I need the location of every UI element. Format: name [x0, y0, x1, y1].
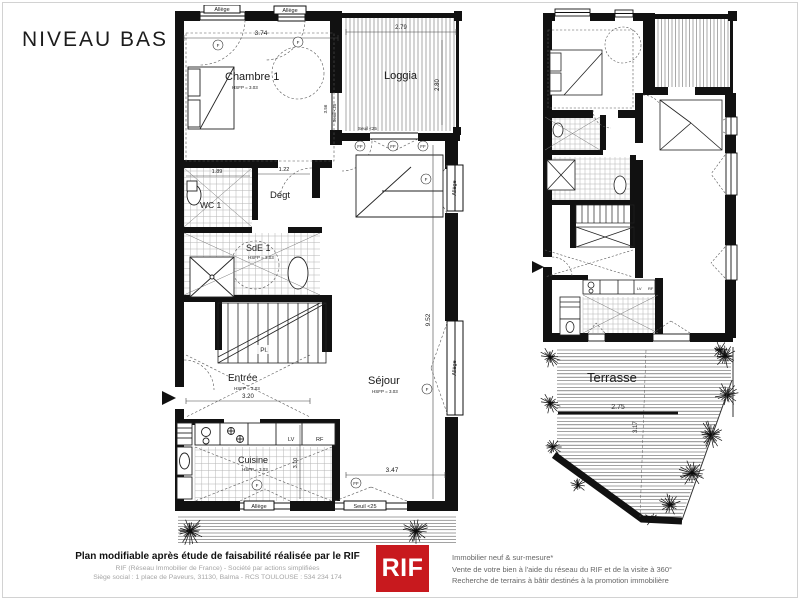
washing-machine	[560, 297, 580, 319]
toilet	[553, 123, 563, 137]
dim-wc-width: 1.89	[212, 169, 223, 175]
kitchen-counter	[195, 423, 335, 445]
footer-services: Immobilier neuf & sur-mesure* Vente de v…	[452, 552, 752, 587]
entrance-arrow	[162, 391, 176, 405]
room-label-loggia: Loggia	[384, 70, 418, 82]
room-label-sejour: Séjour	[368, 375, 400, 387]
dim-terrasse-width: 2.75	[611, 404, 625, 411]
floor-plan-left: Allège Allège Allège Seuil <25 Allège Al…	[160, 5, 470, 550]
room-label-placard: Pl.	[260, 347, 268, 354]
mark-f: F	[217, 43, 220, 48]
mark-ff: FF	[357, 144, 363, 149]
hsfp-entree: HSFP = 3.03	[234, 386, 260, 391]
footer-legal: Plan modifiable après étude de faisabili…	[60, 551, 375, 582]
hsfp-sejour: HSFP = 3.03	[372, 389, 398, 394]
dim-loggia-width: 2.79	[395, 25, 407, 31]
footer-company-line: RIF (Réseau Immobilier de France) - Soci…	[60, 564, 375, 573]
entrance-arrow	[532, 261, 544, 273]
dim-sejour-width: 3.47	[386, 467, 399, 474]
rif-logo: RIF	[376, 545, 429, 592]
washing-machine	[177, 423, 192, 445]
dim-terrasse-depth: 3.17	[633, 421, 639, 433]
mark-ff: FF	[353, 481, 359, 486]
room-label-entree: Entrée	[228, 373, 258, 384]
floor-plan-sheet: NIVEAU BAS	[0, 0, 800, 600]
sofa	[356, 155, 443, 217]
room-label-terrasse: Terrasse	[587, 370, 637, 385]
hsfp-sde: HSFP = 3.03	[248, 255, 274, 260]
dim-sejour-depth: 9.52	[425, 313, 432, 326]
footer-headline: Plan modifiable après étude de faisabili…	[60, 551, 375, 562]
allege-label: Allège	[452, 360, 458, 375]
mark-f: F	[426, 387, 429, 392]
appliance-lv: LV	[637, 286, 642, 291]
mark-ff: FF	[420, 144, 426, 149]
dim-chambre-door: 3.56	[323, 104, 328, 113]
hsfp-cuisine: HSFP = 3.03	[242, 467, 268, 472]
footer-service-line: Immobilier neuf & sur-mesure*	[452, 552, 752, 564]
allege-label: Allège	[282, 8, 297, 14]
allege-label: Allège	[251, 504, 266, 510]
room-label-wc: WC 1	[200, 200, 222, 210]
room-label-cuisine: Cuisine	[238, 455, 268, 465]
furniture	[177, 67, 443, 499]
footer-service-line: Recherche de terrains à bâtir destinés à…	[452, 575, 752, 587]
mark-f: F	[425, 177, 428, 182]
seuil-label: Seuil <25	[332, 103, 337, 122]
dim-loggia-depth: 2.80	[435, 79, 441, 91]
stairs	[576, 205, 634, 247]
footer-address-line: Siège social : 1 place de Paveurs, 31130…	[60, 573, 375, 582]
rif-logo-text: RIF	[382, 554, 424, 583]
floor-plan-right: 2.75 3.17 Terrasse LV RF	[530, 5, 750, 550]
washbasin	[288, 257, 308, 289]
terrace-wall	[554, 455, 682, 521]
mark-ff: FF	[390, 144, 396, 149]
appliance-rf: RF	[648, 286, 654, 291]
bed-2	[660, 100, 722, 150]
mark-f: F	[297, 40, 300, 45]
kitchen-sink	[588, 282, 594, 288]
kitchen-counter	[583, 280, 655, 294]
mark-f: F	[256, 483, 259, 488]
dim-cuisine-depth: 3.10	[293, 458, 299, 469]
room-label-degt: Dégt	[270, 190, 290, 201]
appliance-lv: LV	[288, 437, 295, 443]
dim-degt-width: 1.22	[279, 167, 290, 173]
room-label-sde: SdE 1	[246, 243, 271, 253]
kitchen-sink	[202, 428, 211, 437]
seuil-label: Seuil <25	[353, 504, 376, 510]
allege-label: Allège	[452, 180, 458, 195]
seuil-label: Seuil <25	[358, 126, 377, 131]
washbasin	[614, 176, 626, 194]
page-title: NIVEAU BAS	[22, 28, 168, 52]
terrace: 2.75 3.17 Terrasse	[554, 347, 733, 521]
footer-service-line: Vente de votre bien à l'aide du réseau d…	[452, 564, 752, 576]
dim-chambre-width: 3.74	[255, 30, 268, 37]
appliance-rf: RF	[316, 437, 324, 443]
room-label-chambre: Chambre 1	[225, 71, 279, 83]
dim-entree-width: 3.20	[242, 394, 254, 400]
allege-label: Allège	[214, 7, 229, 13]
hsfp-chambre: HSFP = 3.03	[232, 85, 258, 90]
